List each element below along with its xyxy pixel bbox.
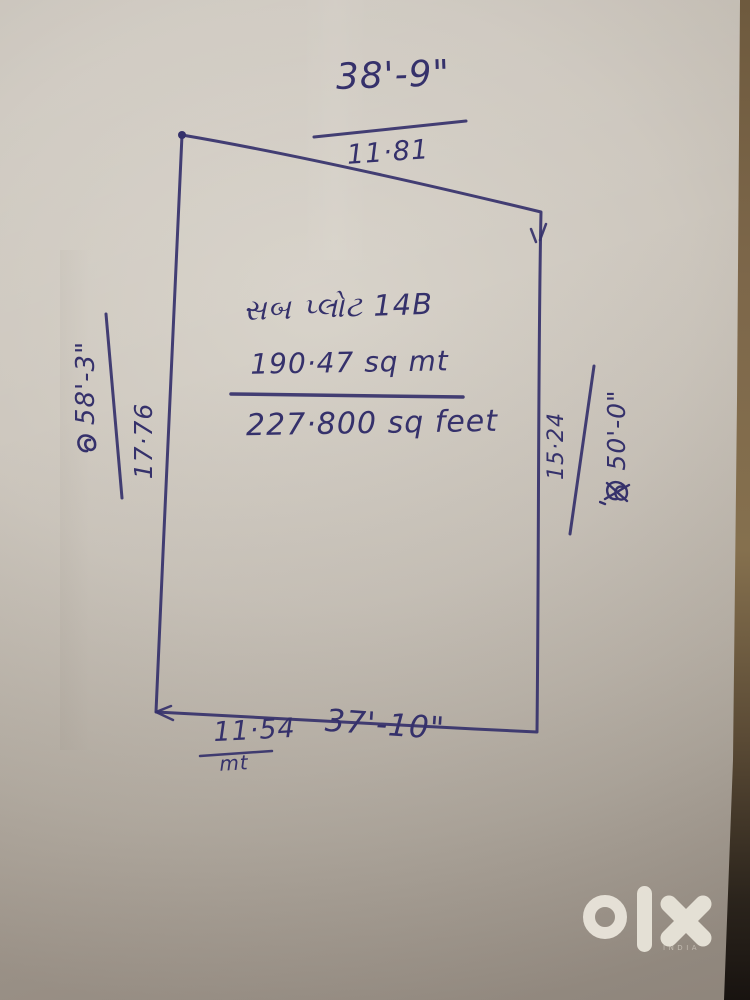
olx-letter-o xyxy=(583,895,627,939)
dimension-bottom-meters-unit: mt xyxy=(210,752,259,774)
dimension-left-meters-value: 17·76 xyxy=(131,403,156,480)
olx-india-label: INDIA xyxy=(663,944,700,952)
olx-logo: INDIA xyxy=(575,885,720,960)
dimension-left-meters: 17·76 xyxy=(126,376,160,506)
dimension-bottom-meters: 11·54 xyxy=(201,714,307,746)
olx-letter-x xyxy=(657,892,715,950)
scribbled-out-mark xyxy=(599,477,633,507)
dimension-bottom-feet: 37'-10" xyxy=(315,705,455,746)
plot-area-sqmt: 190·47 sq mt xyxy=(232,347,467,379)
photographed-plot-sketch: 38'-9" 11·81 સબ પ્લોટ 14B 190·47 sq mt 2… xyxy=(0,0,750,1000)
dimension-right-feet: 50'-0" xyxy=(596,364,636,532)
scribble-mark xyxy=(73,431,99,455)
plot-area-sqfeet: 227·800 sq feet xyxy=(226,406,518,441)
dimension-top-feet: 38'-9" xyxy=(302,55,483,97)
plot-title: સબ પ્લોટ 14B xyxy=(214,289,463,327)
dimension-right-meters-value: 15·24 xyxy=(546,412,568,480)
dimension-top-meters: 11·81 xyxy=(337,136,439,170)
dimension-left-feet-value: 58'-3" xyxy=(73,341,99,425)
tick-mark xyxy=(531,229,536,242)
dimension-left-feet: 58'-3" xyxy=(68,323,104,473)
fraction-bar-area xyxy=(231,394,463,397)
fraction-bar-left xyxy=(106,314,122,498)
dimension-right-feet-value: 50'-0" xyxy=(604,389,629,470)
fraction-bar-top xyxy=(314,121,466,137)
corner-dot xyxy=(178,131,186,139)
dimension-right-meters: 15·24 xyxy=(542,400,572,492)
fraction-bar-right xyxy=(570,366,594,534)
olx-letter-bar xyxy=(637,886,652,952)
